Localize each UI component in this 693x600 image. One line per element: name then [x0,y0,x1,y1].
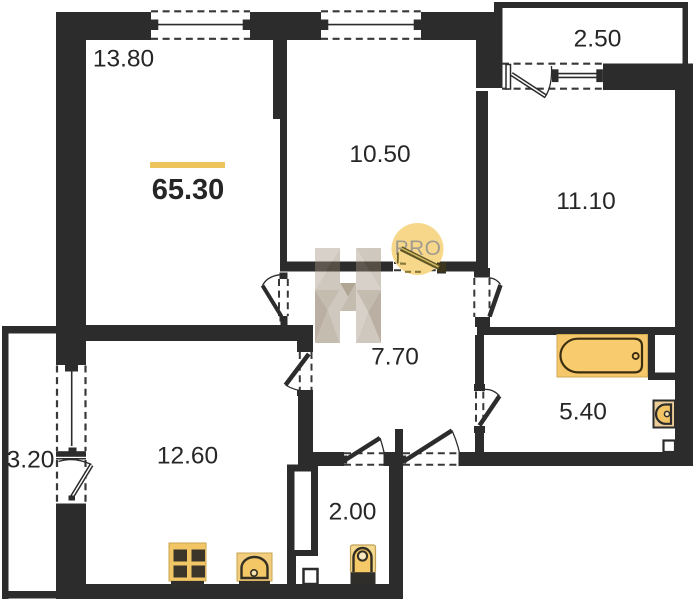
svg-text:5.40: 5.40 [559,399,607,426]
svg-text:2.00: 2.00 [329,499,377,526]
svg-text:13.80: 13.80 [93,46,154,73]
svg-text:65.30: 65.30 [152,174,225,206]
svg-text:11.10: 11.10 [556,188,616,215]
svg-text:3.20: 3.20 [7,447,55,474]
svg-text:12.60: 12.60 [157,443,218,470]
svg-text:7.70: 7.70 [371,344,419,371]
svg-text:2.50: 2.50 [574,26,622,53]
svg-text:10.50: 10.50 [349,141,410,168]
